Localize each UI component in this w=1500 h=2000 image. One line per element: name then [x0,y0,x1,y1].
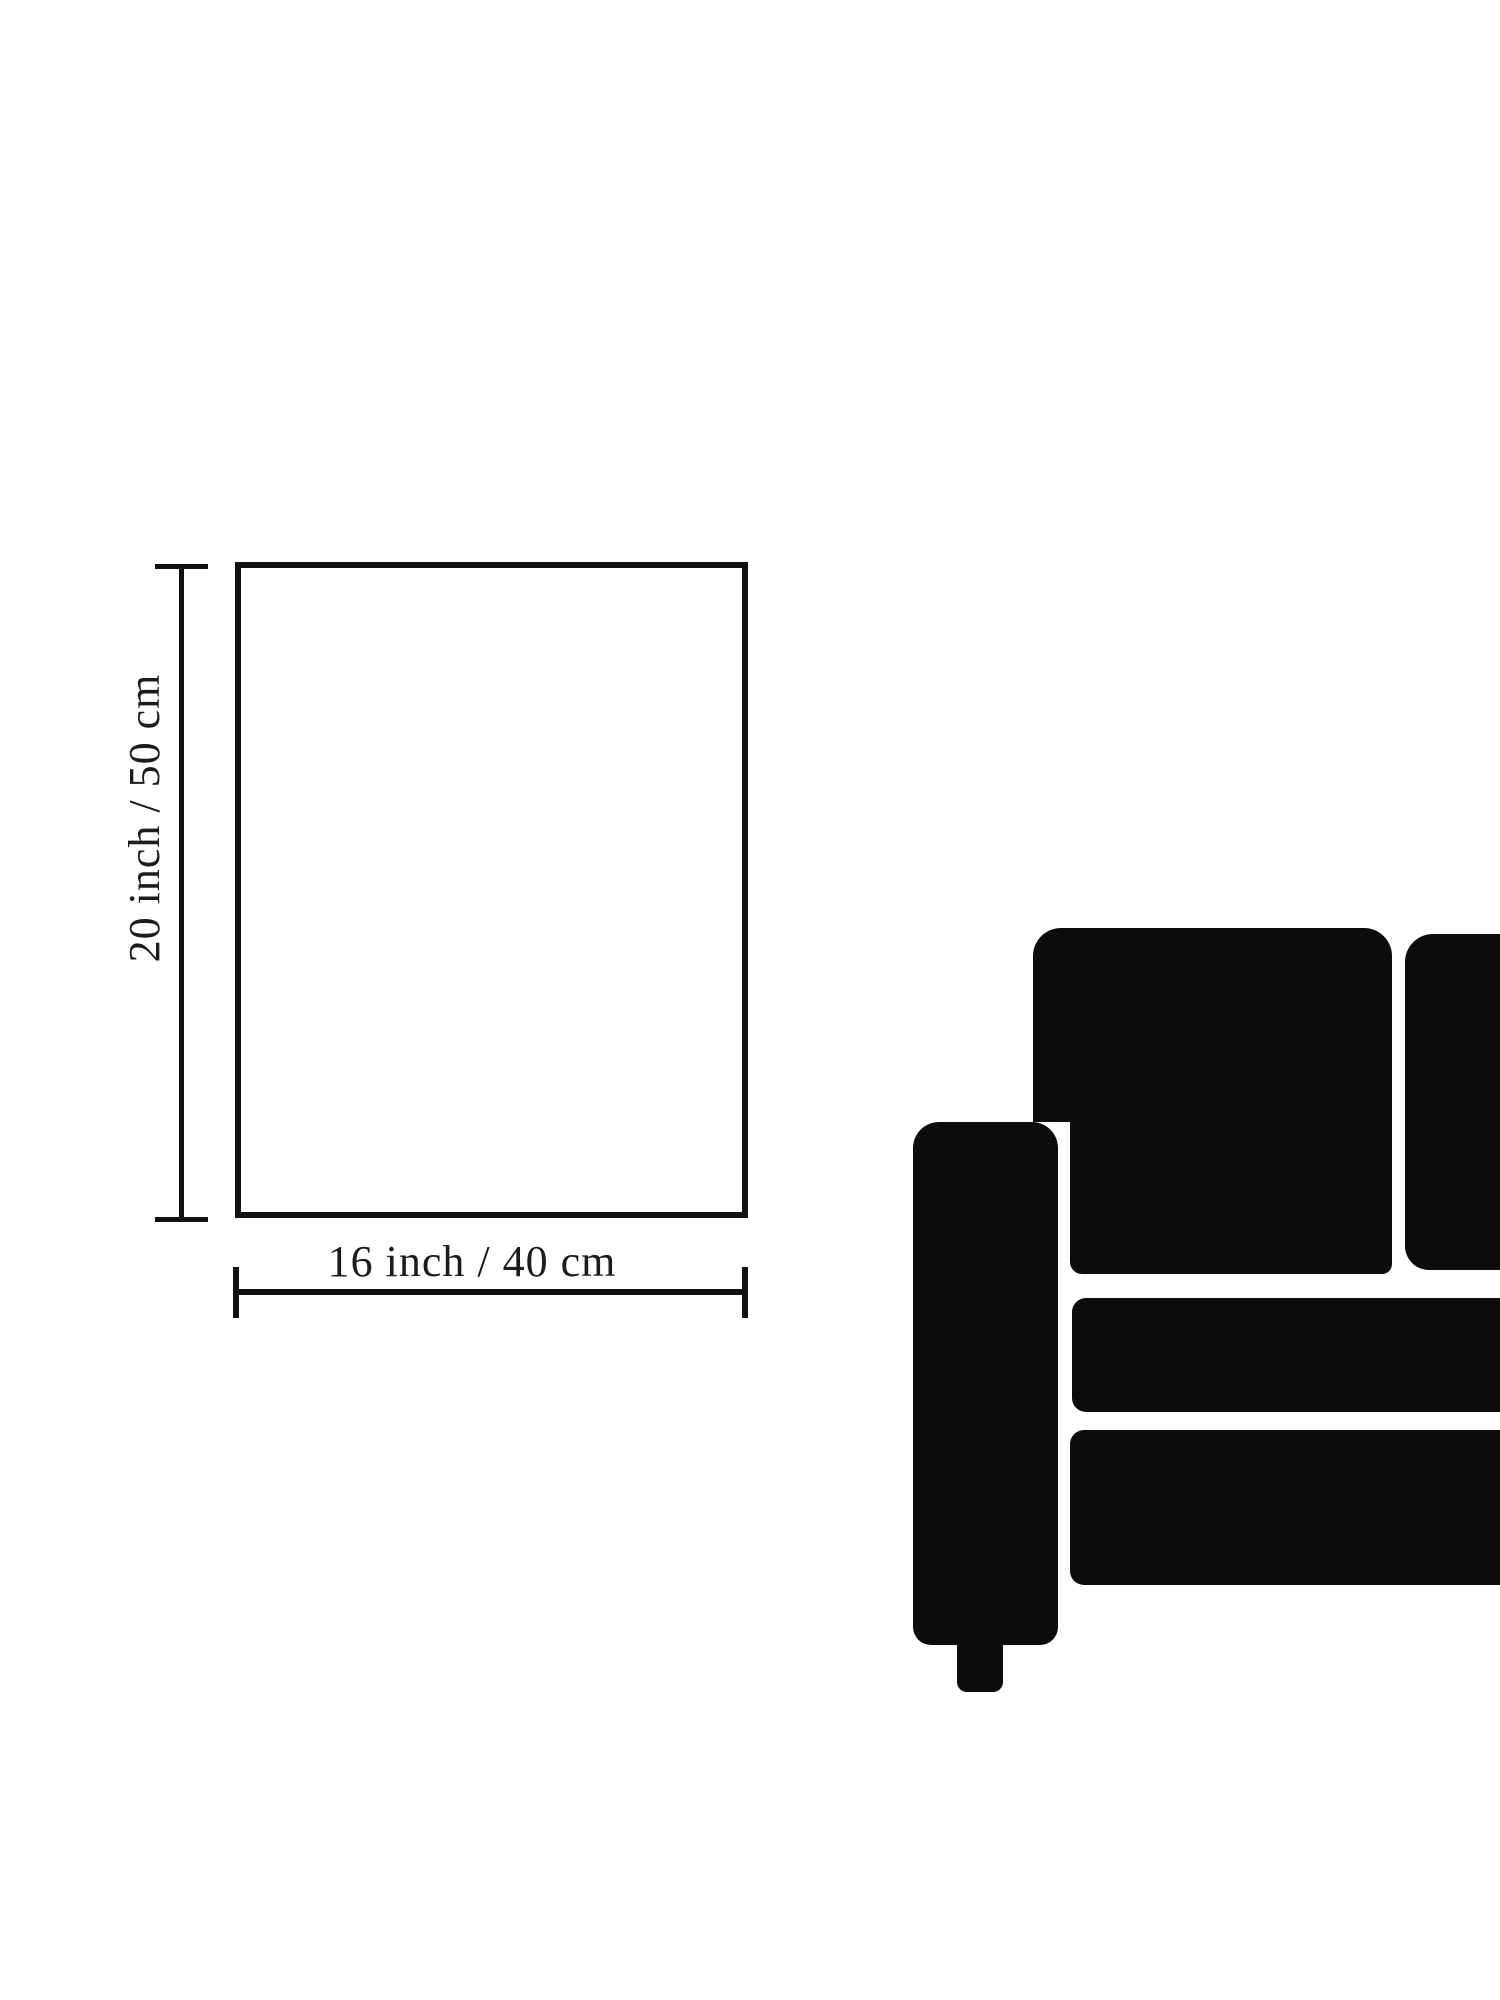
vertical-dimension-line [179,566,184,1219]
vertical-dimension-tick-bottom [155,1217,208,1222]
vertical-dimension-tick-top [155,564,208,569]
sofa-backrest-left-upper [1033,928,1392,1122]
sofa-armrest [913,1122,1058,1645]
sofa-seat-cushion-top [1072,1298,1500,1412]
page-root: 20 inch / 50 cm 16 inch / 40 cm [0,0,1500,2000]
horizontal-dimension-label: 16 inch / 40 cm [236,1236,708,1288]
vertical-dimension-label: 20 inch / 50 cm [119,663,171,973]
frame-rectangle [235,562,748,1218]
sofa-armrest-foot [957,1640,1003,1692]
horizontal-dimension-tick-right [742,1267,748,1318]
sofa-backrest-right [1405,934,1500,1270]
sofa-backrest-left-lower [1070,1100,1392,1274]
sofa-seat-cushion-bottom [1070,1430,1500,1585]
horizontal-dimension-line [235,1289,748,1295]
